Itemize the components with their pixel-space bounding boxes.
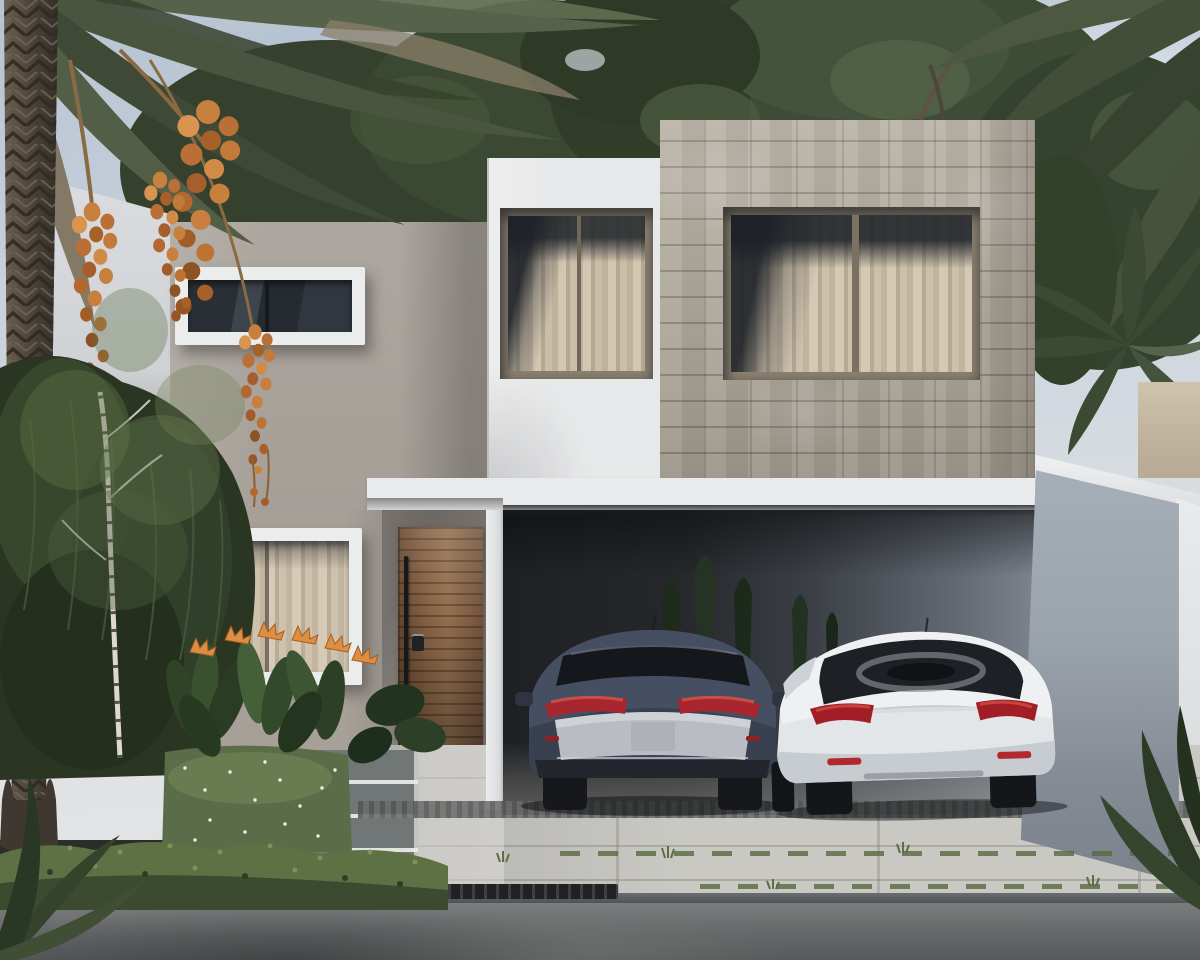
- window-mullion: [265, 280, 269, 332]
- window-glass: [731, 215, 972, 372]
- carport-interior: [503, 510, 1037, 815]
- white-pillar: [486, 510, 503, 810]
- grass-joint: [700, 884, 1200, 889]
- storm-drain-grate: [268, 884, 618, 899]
- street-asphalt: [0, 903, 1200, 960]
- window-mullion: [852, 215, 859, 372]
- carport-side-wall: [1014, 466, 1184, 886]
- carport-ceiling-shadow: [503, 505, 1037, 517]
- window-mullion: [577, 216, 581, 371]
- door-handle: [404, 556, 408, 706]
- window-stone-volume: [723, 207, 980, 380]
- door-keypad: [412, 634, 424, 651]
- neighbor-wall-left: [40, 160, 170, 760]
- planter-edge: [0, 840, 205, 864]
- window-curtains: [188, 541, 349, 672]
- architectural-render-scene: [0, 0, 1200, 960]
- window-center: [500, 208, 653, 379]
- window-upper-left: [175, 267, 365, 345]
- window-mullion: [265, 541, 269, 672]
- window-ground-floor: [175, 528, 362, 685]
- window-glass: [188, 280, 352, 332]
- neighbor-wall-beige: [1138, 382, 1200, 478]
- entry-door: [398, 527, 483, 745]
- window-glass: [508, 216, 645, 371]
- grass-joint: [560, 851, 1200, 856]
